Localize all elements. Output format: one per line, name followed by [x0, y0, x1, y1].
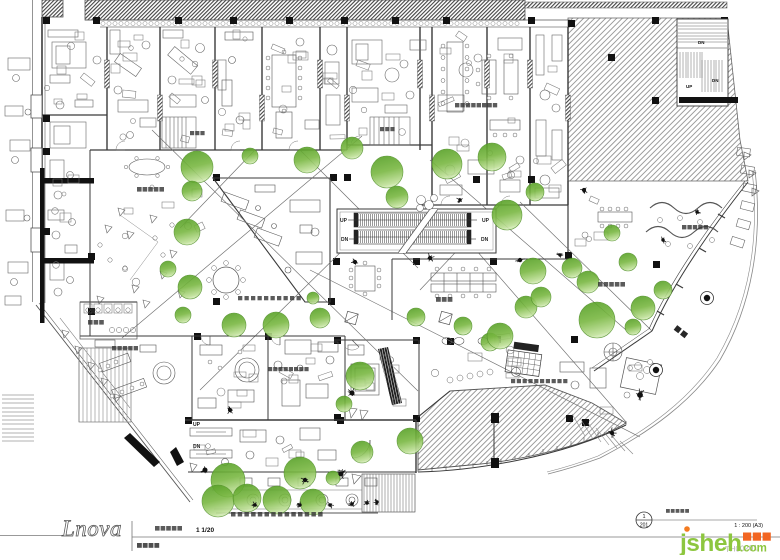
svg-text:201: 201 — [640, 523, 649, 529]
svg-text:.com: .com — [740, 543, 767, 555]
svg-text:DN: DN — [341, 237, 349, 243]
svg-text:UP: UP — [686, 84, 692, 89]
svg-text:jsheh: jsheh — [679, 530, 742, 555]
svg-text:DN: DN — [481, 237, 489, 243]
svg-text:UP: UP — [482, 218, 490, 224]
svg-text:1: 1 — [642, 514, 645, 520]
svg-text:UP: UP — [340, 218, 348, 224]
svg-text:1 1/20: 1 1/20 — [196, 527, 214, 534]
svg-text:DN: DN — [712, 78, 719, 83]
svg-text:1 : 200 (A3): 1 : 200 (A3) — [734, 523, 763, 529]
svg-text:Lnova: Lnova — [61, 516, 122, 541]
svg-text:DN: DN — [698, 40, 705, 45]
svg-text:UP: UP — [193, 422, 201, 428]
